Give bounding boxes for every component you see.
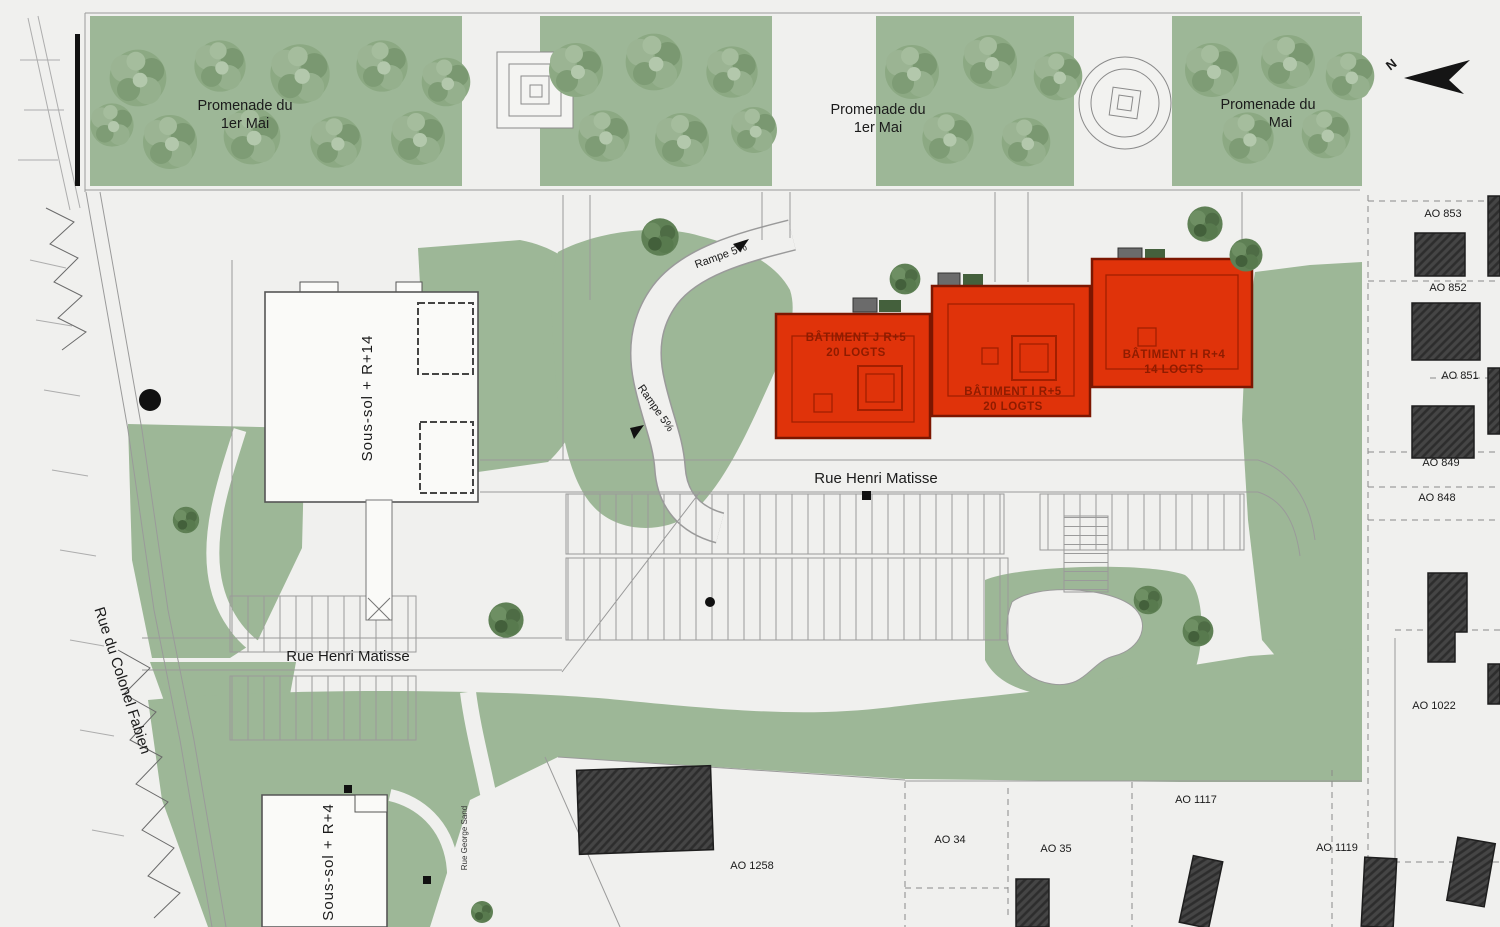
tree-icon	[391, 111, 445, 165]
dark-tree-icon	[1183, 616, 1214, 647]
promenade-2-line1: Promenade du	[830, 102, 925, 118]
tree-icon	[356, 40, 407, 91]
parcel-ao852: AO 852	[1429, 282, 1466, 294]
street-george-sand: Rue George Sand	[460, 806, 469, 871]
tree-icon	[1326, 52, 1375, 101]
tree-icon	[731, 107, 777, 153]
parcel-ao853: AO 853	[1424, 208, 1461, 220]
batiment-i-name: BÂTIMENT I R+5	[964, 385, 1062, 398]
tree-icon	[110, 50, 167, 107]
tree-icon	[549, 43, 603, 97]
circle-plaza	[1079, 57, 1171, 149]
parcel-ao851: AO 851	[1441, 370, 1478, 382]
tree-icon	[1222, 112, 1273, 163]
dark-tree-icon	[1230, 239, 1263, 272]
parcel-ao35: AO 35	[1040, 843, 1071, 855]
tree-icon	[578, 110, 629, 161]
building-ao852	[1412, 303, 1480, 360]
batiment-h[interactable]: BÂTIMENT H R+4 14 LOGTS	[1092, 259, 1252, 387]
site-plan-canvas: Promenade du 1er Mai Sous-sol + R+14 Sou…	[0, 0, 1500, 927]
batiment-j[interactable]: BÂTIMENT J R+5 20 LOGTS	[776, 314, 930, 438]
building-low-r4: Sous-sol + R+4	[262, 795, 387, 927]
tree-icon	[626, 34, 683, 91]
tree-icon	[310, 116, 361, 167]
parcel-ao1117: AO 1117	[1175, 794, 1217, 806]
parcel-ao34: AO 34	[934, 834, 965, 846]
marker-dot	[705, 597, 715, 607]
batiment-h-logts: 14 LOGTS	[1144, 364, 1204, 376]
building-ao853	[1415, 233, 1465, 276]
parcel-ao848: AO 848	[1418, 492, 1455, 504]
promenade-3-line1: Promenade du	[1220, 97, 1315, 113]
low-block-label: Sous-sol + R+4	[320, 803, 337, 920]
tree-icon	[90, 103, 133, 146]
tree-icon	[885, 45, 939, 99]
tree-icon	[1261, 35, 1315, 89]
batiment-j-logts: 20 LOGTS	[826, 347, 886, 359]
building-ao1258	[577, 766, 714, 855]
marker-square-3	[423, 876, 431, 884]
building-edge-mid	[1488, 368, 1500, 434]
tree-icon	[194, 40, 245, 91]
marker-square-2	[344, 785, 352, 793]
tree-icon	[422, 58, 471, 107]
batiment-h-name: BÂTIMENT H R+4	[1123, 348, 1226, 361]
dark-tree-icon	[488, 602, 523, 637]
dark-tree-icon	[173, 507, 199, 533]
street-henri-matisse-center: Rue Henri Matisse	[814, 470, 937, 487]
tree-icon	[1034, 52, 1083, 101]
batiment-i-logts: 20 LOGTS	[983, 401, 1043, 413]
street-henri-matisse-west: Rue Henri Matisse	[286, 648, 409, 665]
tree-icon	[1185, 43, 1239, 97]
boundary-bar	[75, 34, 80, 186]
site-plan-svg: Promenade du 1er Mai Sous-sol + R+14 Sou…	[0, 0, 1500, 927]
tree-icon	[963, 35, 1017, 89]
dark-tree-icon	[641, 218, 678, 255]
building-edge-top	[1488, 196, 1500, 276]
building-south-1	[1016, 879, 1049, 927]
tree-icon	[143, 115, 197, 169]
building-ao851	[1412, 406, 1474, 458]
marker-circle	[139, 389, 161, 411]
promenade-1-line2: 1er Mai	[221, 116, 269, 132]
tree-icon	[1302, 110, 1351, 159]
promenade-2-line2: 1er Mai	[854, 120, 902, 136]
batiment-j-name: BÂTIMENT J R+5	[806, 331, 907, 344]
building-edge-low	[1488, 664, 1500, 704]
dark-tree-icon	[890, 264, 921, 295]
tree-icon	[706, 46, 757, 97]
parcel-ao849: AO 849	[1422, 457, 1459, 469]
dark-tree-icon	[1134, 586, 1163, 615]
dark-tree-icon	[471, 901, 493, 923]
tree-icon	[655, 113, 709, 167]
tree-icon	[270, 44, 329, 103]
tower-label: Sous-sol + R+14	[359, 335, 376, 462]
dark-tree-icon	[1187, 206, 1222, 241]
building-south-3	[1361, 857, 1397, 927]
tree-icon	[922, 112, 973, 163]
marker-square-1	[862, 491, 871, 500]
parcel-ao1119: AO 1119	[1316, 842, 1358, 854]
parcel-ao1258: AO 1258	[730, 860, 773, 872]
tree-icon	[1002, 118, 1051, 167]
batiment-i[interactable]: BÂTIMENT I R+5 20 LOGTS	[932, 286, 1090, 416]
promenade-1-line1: Promenade du	[197, 98, 292, 114]
parcel-ao1022: AO 1022	[1412, 700, 1455, 712]
